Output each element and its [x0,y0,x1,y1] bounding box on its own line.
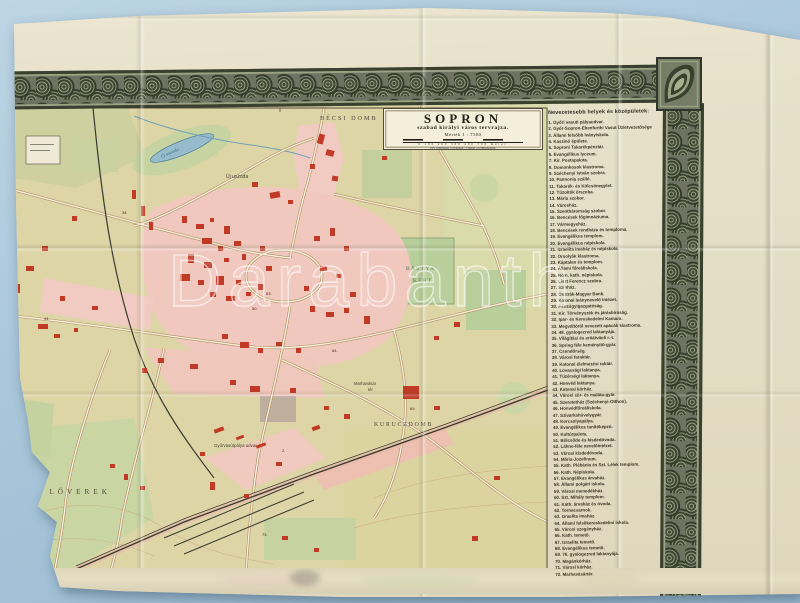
fold-crease [0,14,800,22]
map-building [336,274,341,278]
map-building [236,280,241,285]
legend-panel: Nevezetesebb helyek és középületek: 1. G… [548,108,671,578]
ornamental-border-top [14,65,664,110]
map-building [364,316,370,324]
map-building [330,228,335,236]
map-building [244,494,249,498]
map-building [210,482,215,490]
scale-ticks-values: 0 100 200 300 400 500 [418,142,488,146]
map-building [202,238,212,244]
map-building [260,246,265,251]
map-building [250,386,260,392]
map-building [296,348,301,353]
folded-map-sheet: 34.44.50.63.64.69.2.73. BÉCSI DOMBKIRÁLY… [0,0,800,603]
map-building [344,246,349,251]
map-number-label: 44. [44,316,50,321]
map-building [266,266,272,271]
map-building [110,464,115,468]
map-building [216,276,224,285]
map-building [276,342,282,346]
folded-bottom-strip [40,568,800,594]
map-building [434,406,440,410]
map-label: Új uszoda [226,173,248,180]
map-building [258,348,263,353]
map-building [252,182,258,187]
map-building [310,164,315,169]
fold-smudge [360,576,480,586]
map-building [60,296,65,301]
map-number-label: 63. [266,291,272,296]
fold-crease [764,17,774,603]
scale-note: Egy centiméter a térképen 75 méter a ter… [384,146,542,150]
map-building [344,414,350,419]
map-building [196,224,204,229]
map-building [314,236,320,241]
map-building [198,280,204,285]
inset-box [26,136,60,164]
map-building [344,308,349,313]
map-building [454,322,460,327]
city-map-panel: 34.44.50.63.64.69.2.73. BÉCSI DOMBKIRÁLY… [14,98,548,574]
map-building [158,358,164,363]
map-drawing: 34.44.50.63.64.69.2.73. BÉCSI DOMBKIRÁLY… [14,98,548,574]
fold-smudge [290,570,320,586]
map-building [210,292,216,297]
map-building [74,328,78,332]
legend-heading: Nevezetesebb helyek és középületek: [548,108,664,116]
map-building [224,226,230,234]
map-label: LSŐ LŐVEREK [18,486,111,496]
map-sheet-wrapper: 34.44.50.63.64.69.2.73. BÉCSI DOMBKIRÁLY… [0,0,800,603]
map-title: SOPRON [384,112,542,125]
map-building [140,486,145,490]
map-building [210,218,214,222]
map-building [258,284,263,290]
map-building [218,246,223,251]
map-scale-text: Mérték 1 : 7500 [384,132,542,138]
map-number-label: 50. [252,306,258,311]
map-building [92,306,98,310]
map-building [350,292,356,297]
map-title-box: SOPRON szabad királyi város tervrajza. M… [383,108,543,150]
map-building [472,536,478,541]
map-number-label: 64. [332,348,338,353]
map-building [304,286,309,291]
map-label: KERT [413,278,432,284]
map-building [276,462,282,466]
map-building [200,452,205,456]
map-building [234,241,241,246]
map-building [226,296,235,301]
map-building [224,258,229,262]
map-building [324,406,329,410]
map-building [246,292,251,296]
map-label: tér [368,387,373,392]
map-building [132,190,136,199]
map-building [320,266,327,271]
map-building [222,334,228,339]
map-building [230,380,236,385]
map-building [180,274,190,281]
map-building [403,386,419,399]
map-building [149,222,153,230]
map-building [142,368,147,373]
map-label: Marhavásár [354,381,377,386]
map-subtitle: szabad királyi város tervrajza. [384,125,542,132]
map-building [26,266,34,271]
map-building [14,284,20,293]
map-building [42,246,48,251]
map-building [288,200,293,204]
map-building [290,388,296,393]
map-building [314,548,319,552]
map-building [54,334,60,338]
map-building [326,312,334,317]
map-number-label: 69. [410,406,416,411]
map-number-label: 2. [282,448,285,453]
legend-item-list: 1. Győri vasuti pályaudvar.2. Győr-Sopro… [548,118,671,578]
map-building [240,342,249,348]
map-building [72,216,77,221]
map-building [242,254,246,260]
map-label: BÁSTYA [406,264,435,272]
map-building [382,156,387,160]
map-building [141,206,145,216]
map-building [38,324,48,329]
map-label: Győrvasútpálya udvar [214,443,257,448]
map-building [282,536,288,540]
map-building [190,364,198,369]
map-building [204,262,212,268]
map-building [188,254,194,263]
photo-canvas: 34.44.50.63.64.69.2.73. BÉCSI DOMBKIRÁLY… [0,0,800,603]
map-building [434,336,439,340]
scale-unit: méter [491,142,508,146]
map-building [182,216,187,223]
corner-ornament [656,57,702,111]
map-label: KURUCZDOMB [374,422,433,428]
map-label: BÉCSI DOMB [320,114,378,122]
map-building [124,474,128,480]
map-building [332,176,339,182]
map-number-label: 34. [122,210,128,215]
map-building [494,476,500,480]
map-building [310,306,315,312]
map-number-label: 73. [262,532,268,537]
